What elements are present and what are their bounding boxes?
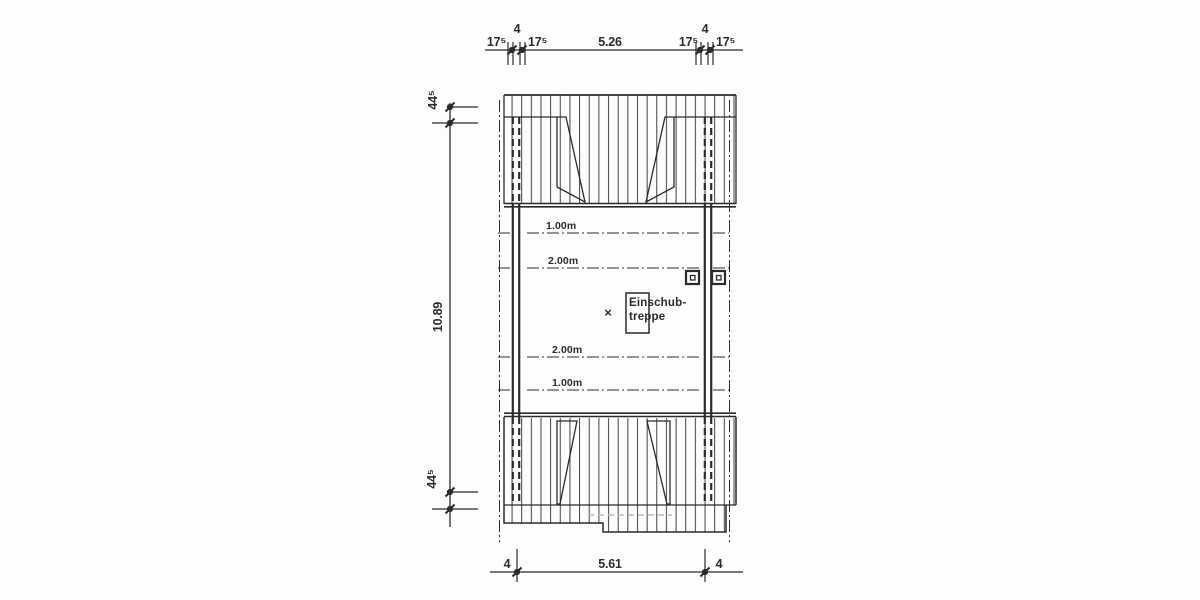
top-dim-right-outer: 17⁵	[716, 35, 736, 49]
bottom-band-hatch-left	[504, 505, 603, 523]
room-edges	[504, 204, 736, 417]
top-band-hatch	[504, 95, 736, 204]
top-roof-band	[504, 95, 736, 204]
room-top-edge	[504, 204, 736, 207]
chimney-symbol-left	[686, 271, 699, 284]
bottom-dim-left-wall: 4	[504, 557, 511, 571]
bottom-dimension: 4 5.61 4	[490, 549, 743, 582]
left-dim-span: 10.89	[431, 302, 445, 333]
right-wall-solid	[705, 204, 711, 417]
left-dimension: 44⁵ 10.89 44⁵	[425, 90, 478, 527]
top-dim-right-mid: 4	[702, 22, 709, 36]
contour-label-lower-2m: 2.00m	[552, 344, 582, 356]
bottom-band-hatch-upper	[504, 418, 736, 505]
bottom-dim-right-wall: 4	[716, 557, 723, 571]
room-bottom-edge	[504, 413, 736, 416]
bottom-band-hatch-right	[603, 505, 726, 532]
contour-label-upper-2m: 2.00m	[548, 255, 578, 267]
plan-body: 1.00m 2.00m 2.00m 1.00m Einschub- treppe…	[498, 95, 736, 542]
top-dimension: 17⁵ 4 17⁵ 5.26 17⁵ 4 17⁵	[485, 22, 743, 65]
left-dim-bottom-offset: 44⁵	[425, 469, 439, 489]
left-dim-top-offset: 44⁵	[426, 90, 440, 110]
chimney-symbol-right-core	[717, 276, 722, 281]
floor-plan-drawing: 1.00m 2.00m 2.00m 1.00m Einschub- treppe…	[0, 0, 1200, 600]
contour-lines	[498, 233, 729, 390]
position-marker-x: ×	[604, 305, 612, 320]
scanned-drawing-page: 1.00m 2.00m 2.00m 1.00m Einschub- treppe…	[0, 0, 1200, 600]
contour-label-lower-1m: 1.00m	[552, 377, 582, 389]
left-wall-solid	[513, 204, 519, 417]
loft-ladder-label-line2: treppe	[629, 311, 665, 323]
top-dim-left-inner: 17⁵	[528, 35, 548, 49]
chimney-symbol-left-core	[691, 276, 696, 281]
loft-ladder: Einschub- treppe ×	[604, 293, 686, 333]
height-contours: 1.00m 2.00m 2.00m 1.00m	[498, 220, 729, 390]
chimney-symbol-right	[712, 271, 725, 284]
bottom-dim-span: 5.61	[598, 557, 622, 571]
contour-label-upper-1m: 1.00m	[546, 220, 576, 232]
top-dim-right-inner: 17⁵	[679, 35, 699, 49]
top-dim-span: 5.26	[598, 35, 622, 49]
bottom-roof-band	[504, 417, 736, 532]
loft-ladder-label-line1: Einschub-	[629, 297, 686, 309]
top-dim-left-outer: 17⁵	[487, 35, 507, 49]
top-dim-left-mid: 4	[514, 22, 521, 36]
